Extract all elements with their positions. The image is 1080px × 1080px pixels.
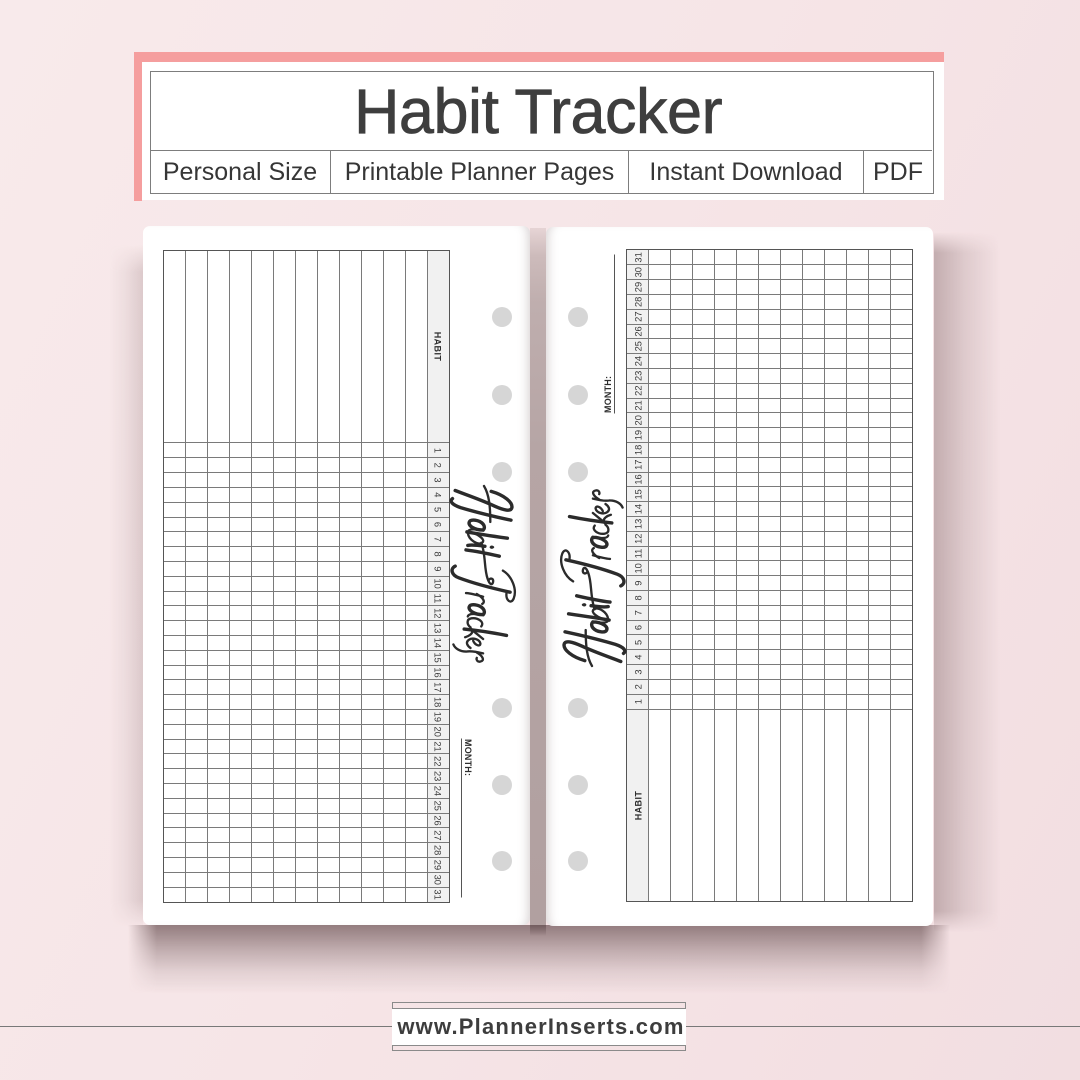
- svg-text:16: 16: [433, 667, 443, 677]
- svg-text:30: 30: [433, 875, 443, 885]
- svg-text:5: 5: [633, 640, 643, 645]
- svg-text:27: 27: [633, 311, 643, 321]
- svg-text:7: 7: [633, 610, 643, 615]
- svg-text:1: 1: [633, 699, 643, 704]
- svg-text:10: 10: [433, 578, 443, 588]
- svg-text:26: 26: [633, 326, 643, 336]
- svg-text:17: 17: [433, 682, 443, 692]
- svg-text:24: 24: [433, 786, 443, 796]
- svg-text:21: 21: [633, 400, 643, 410]
- svg-text:20: 20: [633, 415, 643, 425]
- svg-text:13: 13: [433, 623, 443, 633]
- svg-text:6: 6: [433, 522, 443, 527]
- svg-text:HABIT: HABIT: [634, 791, 644, 821]
- svg-text:19: 19: [433, 712, 443, 722]
- svg-text:18: 18: [633, 445, 643, 455]
- svg-text:9: 9: [633, 581, 643, 586]
- svg-text:8: 8: [633, 595, 643, 600]
- svg-text:12: 12: [633, 534, 643, 544]
- svg-text:13: 13: [633, 519, 643, 529]
- svg-text:31: 31: [433, 889, 443, 899]
- svg-text:4: 4: [433, 492, 443, 497]
- svg-text:8: 8: [433, 551, 443, 556]
- svg-text:28: 28: [633, 297, 643, 307]
- svg-text:30: 30: [633, 267, 643, 277]
- svg-text:12: 12: [433, 608, 443, 618]
- svg-text:14: 14: [433, 638, 443, 648]
- svg-text:29: 29: [633, 282, 643, 292]
- svg-text:15: 15: [433, 653, 443, 663]
- svg-text:18: 18: [433, 697, 443, 707]
- svg-text:1: 1: [433, 448, 443, 453]
- svg-text:15: 15: [633, 489, 643, 499]
- svg-text:22: 22: [633, 385, 643, 395]
- svg-text:28: 28: [433, 845, 443, 855]
- svg-text:3: 3: [633, 669, 643, 674]
- svg-text:19: 19: [633, 430, 643, 440]
- svg-text:HABIT: HABIT: [432, 332, 442, 362]
- svg-text:10: 10: [633, 563, 643, 573]
- svg-text:25: 25: [633, 341, 643, 351]
- svg-text:9: 9: [433, 566, 443, 571]
- svg-text:3: 3: [433, 477, 443, 482]
- svg-text:MONTH:: MONTH:: [603, 376, 613, 413]
- svg-text:6: 6: [633, 625, 643, 630]
- svg-text:2: 2: [633, 684, 643, 689]
- svg-text:27: 27: [433, 830, 443, 840]
- svg-text:4: 4: [633, 655, 643, 660]
- svg-text:20: 20: [433, 727, 443, 737]
- svg-text:17: 17: [633, 460, 643, 470]
- svg-text:2: 2: [433, 463, 443, 468]
- svg-text:21: 21: [433, 741, 443, 751]
- svg-text:23: 23: [633, 371, 643, 381]
- svg-text:5: 5: [433, 507, 443, 512]
- svg-text:14: 14: [633, 504, 643, 514]
- svg-text:MONTH:: MONTH:: [463, 739, 473, 776]
- svg-text:24: 24: [633, 356, 643, 366]
- svg-text:29: 29: [433, 860, 443, 870]
- svg-text:11: 11: [633, 549, 643, 559]
- svg-text:25: 25: [433, 801, 443, 811]
- svg-text:22: 22: [433, 756, 443, 766]
- svg-text:11: 11: [433, 594, 443, 604]
- svg-text:23: 23: [433, 771, 443, 781]
- svg-text:31: 31: [633, 252, 643, 262]
- svg-text:26: 26: [433, 815, 443, 825]
- svg-text:7: 7: [433, 537, 443, 542]
- svg-text:16: 16: [633, 474, 643, 484]
